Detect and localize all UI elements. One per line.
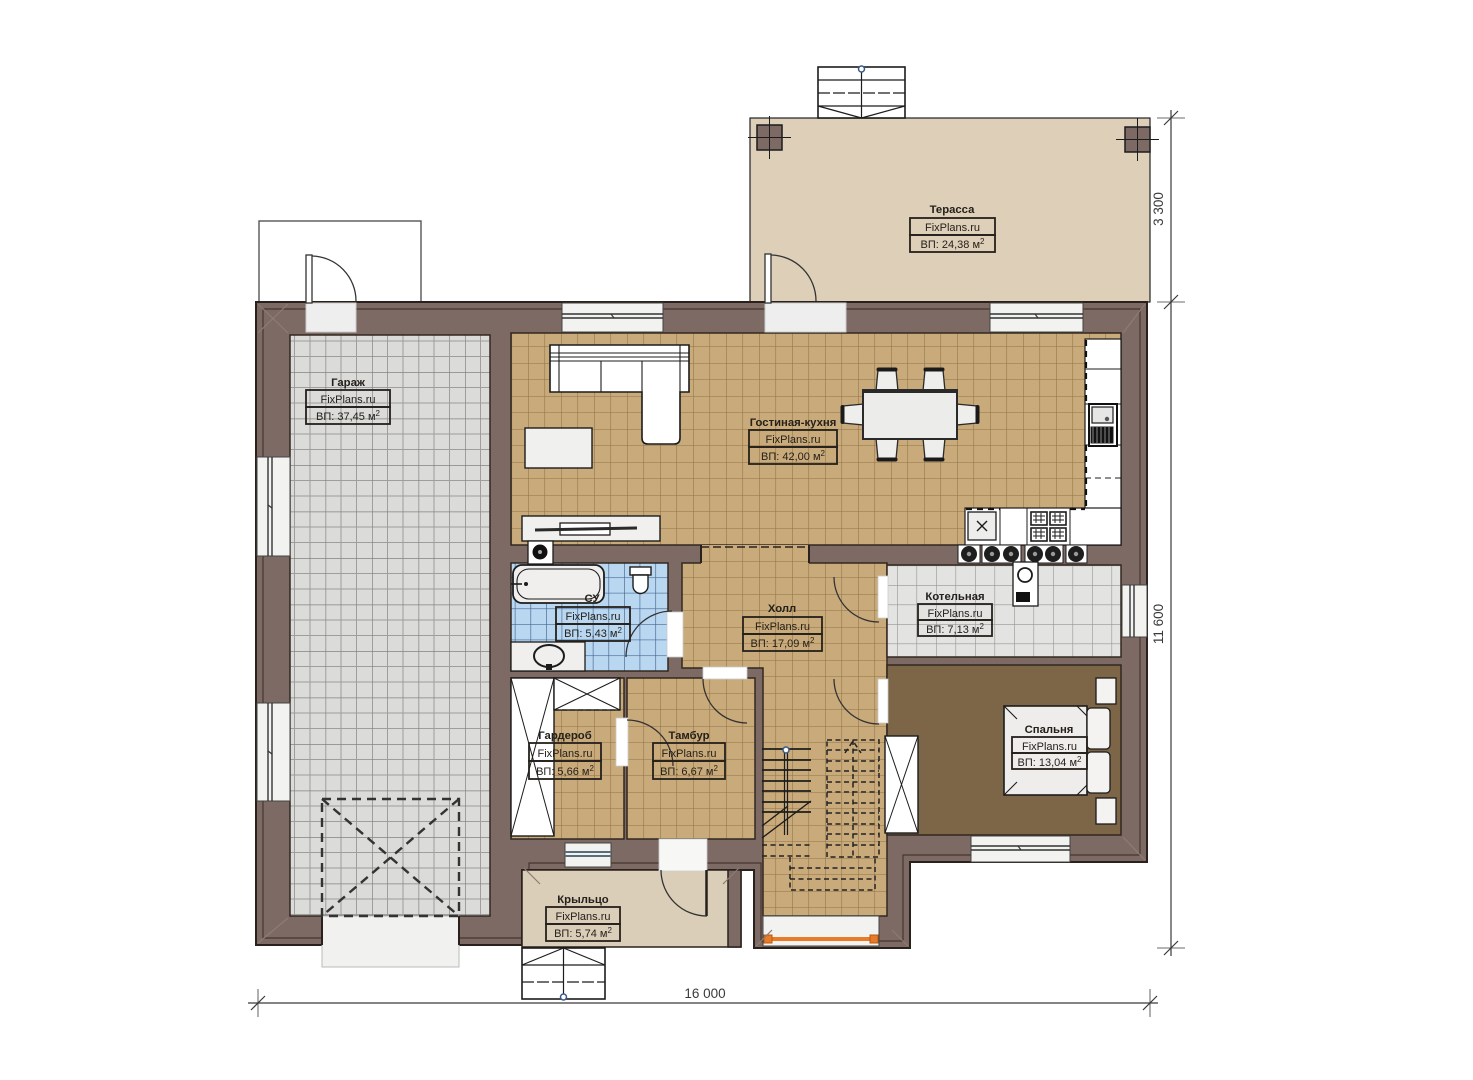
svg-text:ВП: 37,45 м2: ВП: 37,45 м2: [316, 409, 381, 423]
svg-text:Гардероб: Гардероб: [538, 730, 591, 742]
svg-text:FixPlans.ru: FixPlans.ru: [565, 611, 620, 623]
svg-text:ВП: 42,00 м2: ВП: 42,00 м2: [761, 449, 826, 463]
svg-text:Крыльцо: Крыльцо: [557, 894, 609, 906]
svg-text:ВП: 24,38 м2: ВП: 24,38 м2: [921, 237, 986, 251]
svg-text:FixPlans.ru: FixPlans.ru: [555, 911, 610, 923]
svg-text:FixPlans.ru: FixPlans.ru: [320, 394, 375, 406]
svg-text:Котельная: Котельная: [925, 591, 984, 603]
svg-text:Тамбур: Тамбур: [669, 730, 710, 742]
svg-text:FixPlans.ru: FixPlans.ru: [661, 748, 716, 760]
svg-text:ВП: 5,74 м2: ВП: 5,74 м2: [554, 926, 612, 940]
svg-text:ВП: 13,04 м2: ВП: 13,04 м2: [1018, 755, 1083, 769]
svg-text:11 600: 11 600: [1151, 604, 1166, 644]
svg-text:Гостиная-кухня: Гостиная-кухня: [750, 417, 837, 429]
svg-text:FixPlans.ru: FixPlans.ru: [925, 222, 980, 234]
svg-text:FixPlans.ru: FixPlans.ru: [537, 748, 592, 760]
svg-text:FixPlans.ru: FixPlans.ru: [927, 608, 982, 620]
svg-text:3 300: 3 300: [1151, 192, 1166, 226]
svg-text:Холл: Холл: [768, 603, 796, 615]
svg-text:ВП: 6,67 м2: ВП: 6,67 м2: [660, 764, 718, 778]
svg-text:Гараж: Гараж: [331, 377, 366, 389]
svg-text:ВП: 7,13 м2: ВП: 7,13 м2: [926, 622, 984, 636]
svg-text:Спальня: Спальня: [1025, 724, 1074, 736]
svg-text:ВП: 17,09 м2: ВП: 17,09 м2: [751, 636, 816, 650]
svg-text:Терасса: Терасса: [930, 204, 976, 216]
svg-text:FixPlans.ru: FixPlans.ru: [765, 434, 820, 446]
svg-text:ВП: 5,66 м2: ВП: 5,66 м2: [536, 764, 594, 778]
svg-text:16 000: 16 000: [684, 986, 725, 1001]
svg-text:FixPlans.ru: FixPlans.ru: [1022, 741, 1077, 753]
svg-text:ВП: 5,43 м2: ВП: 5,43 м2: [564, 626, 622, 640]
svg-text:FixPlans.ru: FixPlans.ru: [755, 621, 810, 633]
svg-text:СУ: СУ: [584, 593, 600, 605]
